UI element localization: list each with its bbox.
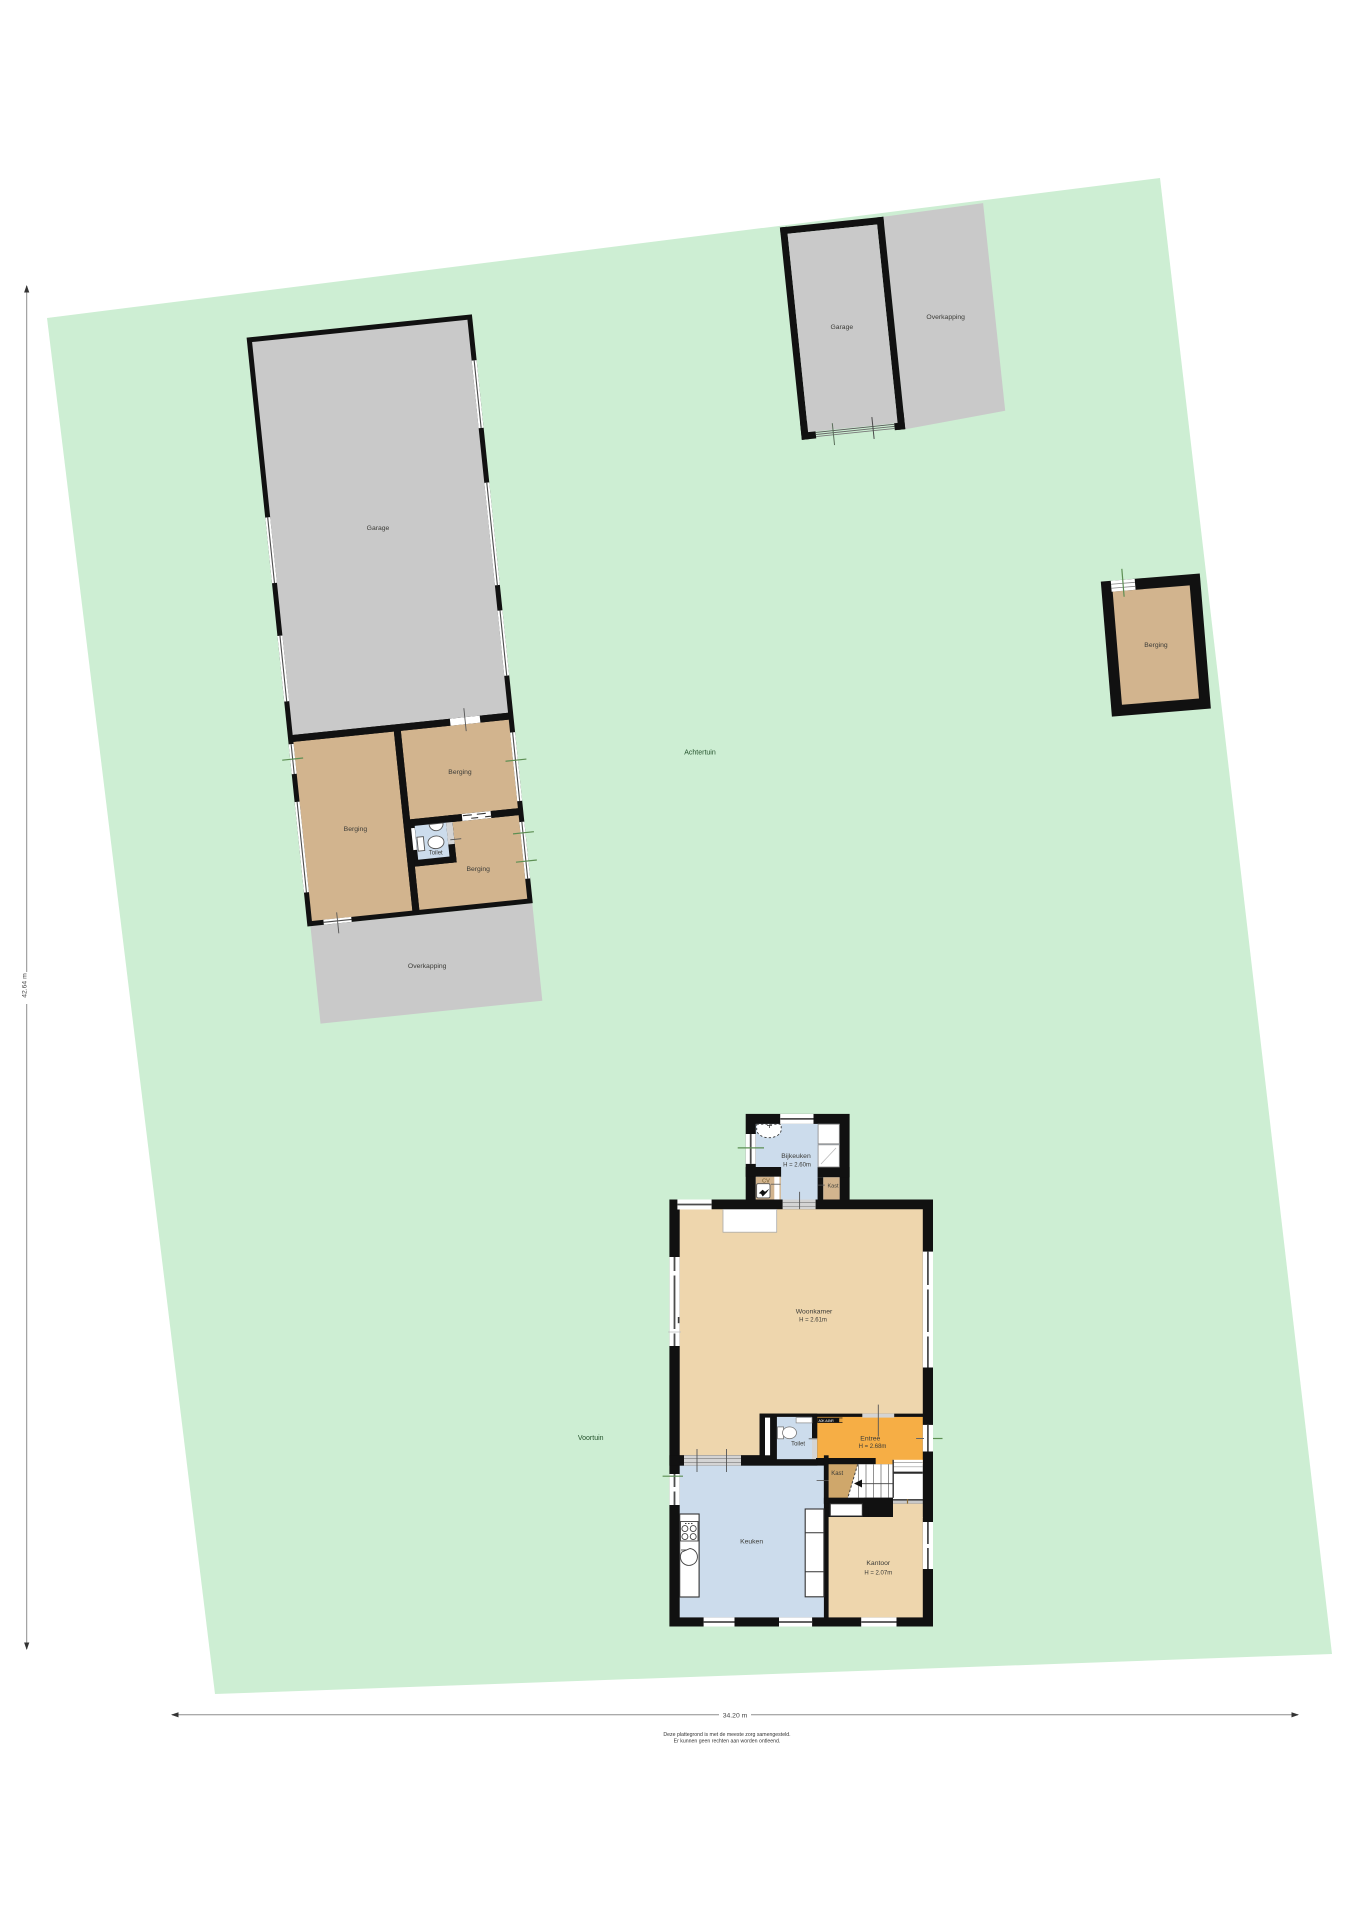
svg-text:CV: CV (762, 1178, 770, 1184)
svg-text:Overkapping: Overkapping (408, 963, 447, 970)
svg-text:Keuken: Keuken (740, 1538, 763, 1545)
svg-text:Achtertuin: Achtertuin (684, 750, 716, 757)
svg-text:34.20 m: 34.20 m (723, 1712, 748, 1719)
svg-text:Kantoor: Kantoor (866, 1560, 891, 1567)
svg-text:H = 2.60m: H = 2.60m (783, 1163, 811, 1169)
svg-text:Kast: Kast (827, 1184, 838, 1190)
svg-text:Entree: Entree (860, 1436, 880, 1443)
svg-text:Voortuin: Voortuin (578, 1435, 604, 1442)
svg-text:Berging: Berging (448, 769, 472, 776)
svg-text:Woonkamer: Woonkamer (796, 1309, 833, 1316)
svg-text:42.64 m: 42.64 m (22, 973, 29, 998)
svg-text:H = 2.07m: H = 2.07m (864, 1570, 892, 1576)
svg-text:Overkapping: Overkapping (926, 314, 965, 321)
svg-text:Garage: Garage (830, 324, 853, 331)
svg-text:Berging: Berging (1144, 642, 1168, 649)
svg-text:Deze plattegrond is met de mee: Deze plattegrond is met de meeste zorg s… (663, 1732, 790, 1738)
svg-text:Berging: Berging (466, 866, 490, 873)
svg-text:Toilet: Toilet (791, 1441, 805, 1447)
svg-text:Bijkeuken: Bijkeuken (781, 1153, 811, 1160)
svg-text:H = 2.68m: H = 2.68m (859, 1444, 887, 1450)
svg-text:Garage: Garage (367, 525, 390, 532)
svg-text:A0K A4NR: A0K A4NR (819, 1419, 835, 1423)
svg-text:H = 2.61m: H = 2.61m (799, 1318, 827, 1324)
svg-text:Kast: Kast (831, 1471, 843, 1477)
svg-text:Er kunnen geen rechten aan wor: Er kunnen geen rechten aan worden ontlee… (674, 1739, 781, 1745)
svg-text:Toilet: Toilet (429, 851, 443, 857)
svg-text:Berging: Berging (344, 826, 368, 833)
